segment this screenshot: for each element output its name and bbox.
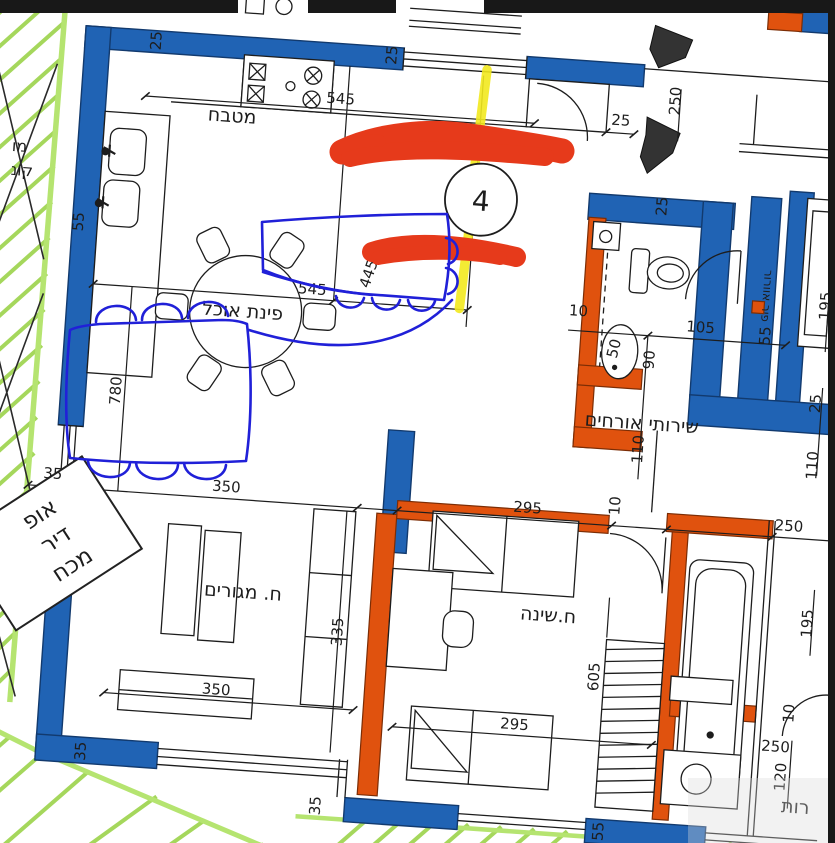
right-edge-bar [828,0,835,843]
desk [386,568,453,670]
red-marker-stroke-lower-2 [378,253,500,258]
dim-dining-780: 780 [106,376,126,406]
label-kitchen: מטבח [207,103,257,128]
dim-bath-250a: 250 [774,516,804,536]
wall-wc-right [690,201,734,399]
faucet-dot-1 [102,148,109,155]
dim-wcwall-25: 25 [652,196,671,216]
entry-cabinet [526,79,609,132]
dim-bed-295b: 295 [500,714,530,734]
toilet-tank [629,248,650,293]
dim-top-25: 25 [147,31,166,51]
dim-wall-35a: 35 [71,741,90,761]
dim-left-35: 35 [43,464,63,483]
dim-balcony-250: 250 [665,86,685,116]
dim-door-10: 10 [605,496,624,516]
wall-topright-fragment-orange [768,11,803,31]
dim-wardrobe-605: 605 [584,662,604,692]
dim-wc-105: 105 [686,317,716,337]
dim-living-335: 335 [328,617,348,647]
bedroom-door-arc [606,534,666,594]
sofa-right [300,509,356,707]
dim-wc-110: 110 [628,434,648,464]
top-bar-segment-2 [308,0,396,13]
top-bar-segment-3 [484,0,835,13]
dim-bottom-55: 55 [589,821,608,841]
top-bar-segment-1 [0,0,238,13]
dim-kitchen-545: 545 [326,89,356,109]
dim-wc-10: 10 [568,301,588,320]
floorplan-screenshot: 4 מטבח פינת אוכל ח. מגורים ח.שינה שירותי… [0,0,835,843]
dim-window-25: 25 [382,45,401,65]
dim-bed-295a: 295 [513,498,543,518]
boiler [592,222,621,251]
dim-balcony-25: 25 [611,111,631,130]
stove-fragment-sq [245,0,264,14]
callout-number: 4 [471,184,491,218]
dim-wc-90: 90 [640,350,659,370]
dim-living-350b: 350 [201,679,231,699]
section-arrow-top [649,25,694,70]
wall-bottom-left [35,734,159,768]
dim-living-350a: 350 [211,477,241,497]
stove-fragment-circle [275,0,292,15]
faucet-dot-2 [95,199,102,206]
wardrobe [595,640,665,812]
corridor-line [652,431,658,513]
label-edge-2: קונ [10,160,33,180]
washbasin [670,676,734,704]
desk-chair [442,610,474,648]
dim-bath-195: 195 [797,609,817,639]
wc-sink-drain [612,365,616,369]
sofa-cushion-1 [161,524,202,636]
scan-shadow [688,778,828,843]
dim-br-250: 250 [761,737,791,757]
dim-bathdoor-10: 10 [779,703,798,723]
label-bedroom: ח.שינה [519,602,577,628]
dim-bar-25: 25 [806,393,825,413]
dim-wall-35b: 35 [306,795,325,815]
label-edge-1: מו [11,136,28,156]
bathtub-drain [707,732,713,738]
dim-left-55: 55 [69,212,88,232]
dim-right-110: 110 [802,451,822,481]
floorplan-svg: 4 מטבח פינת אוכל ח. מגורים ח.שינה שירותי… [0,0,835,843]
bed-2 [406,706,553,790]
red-marker-stroke-upper-2 [350,150,545,158]
section-arrow-mid [639,117,681,176]
dim-shaft-55: 55 [756,326,775,346]
